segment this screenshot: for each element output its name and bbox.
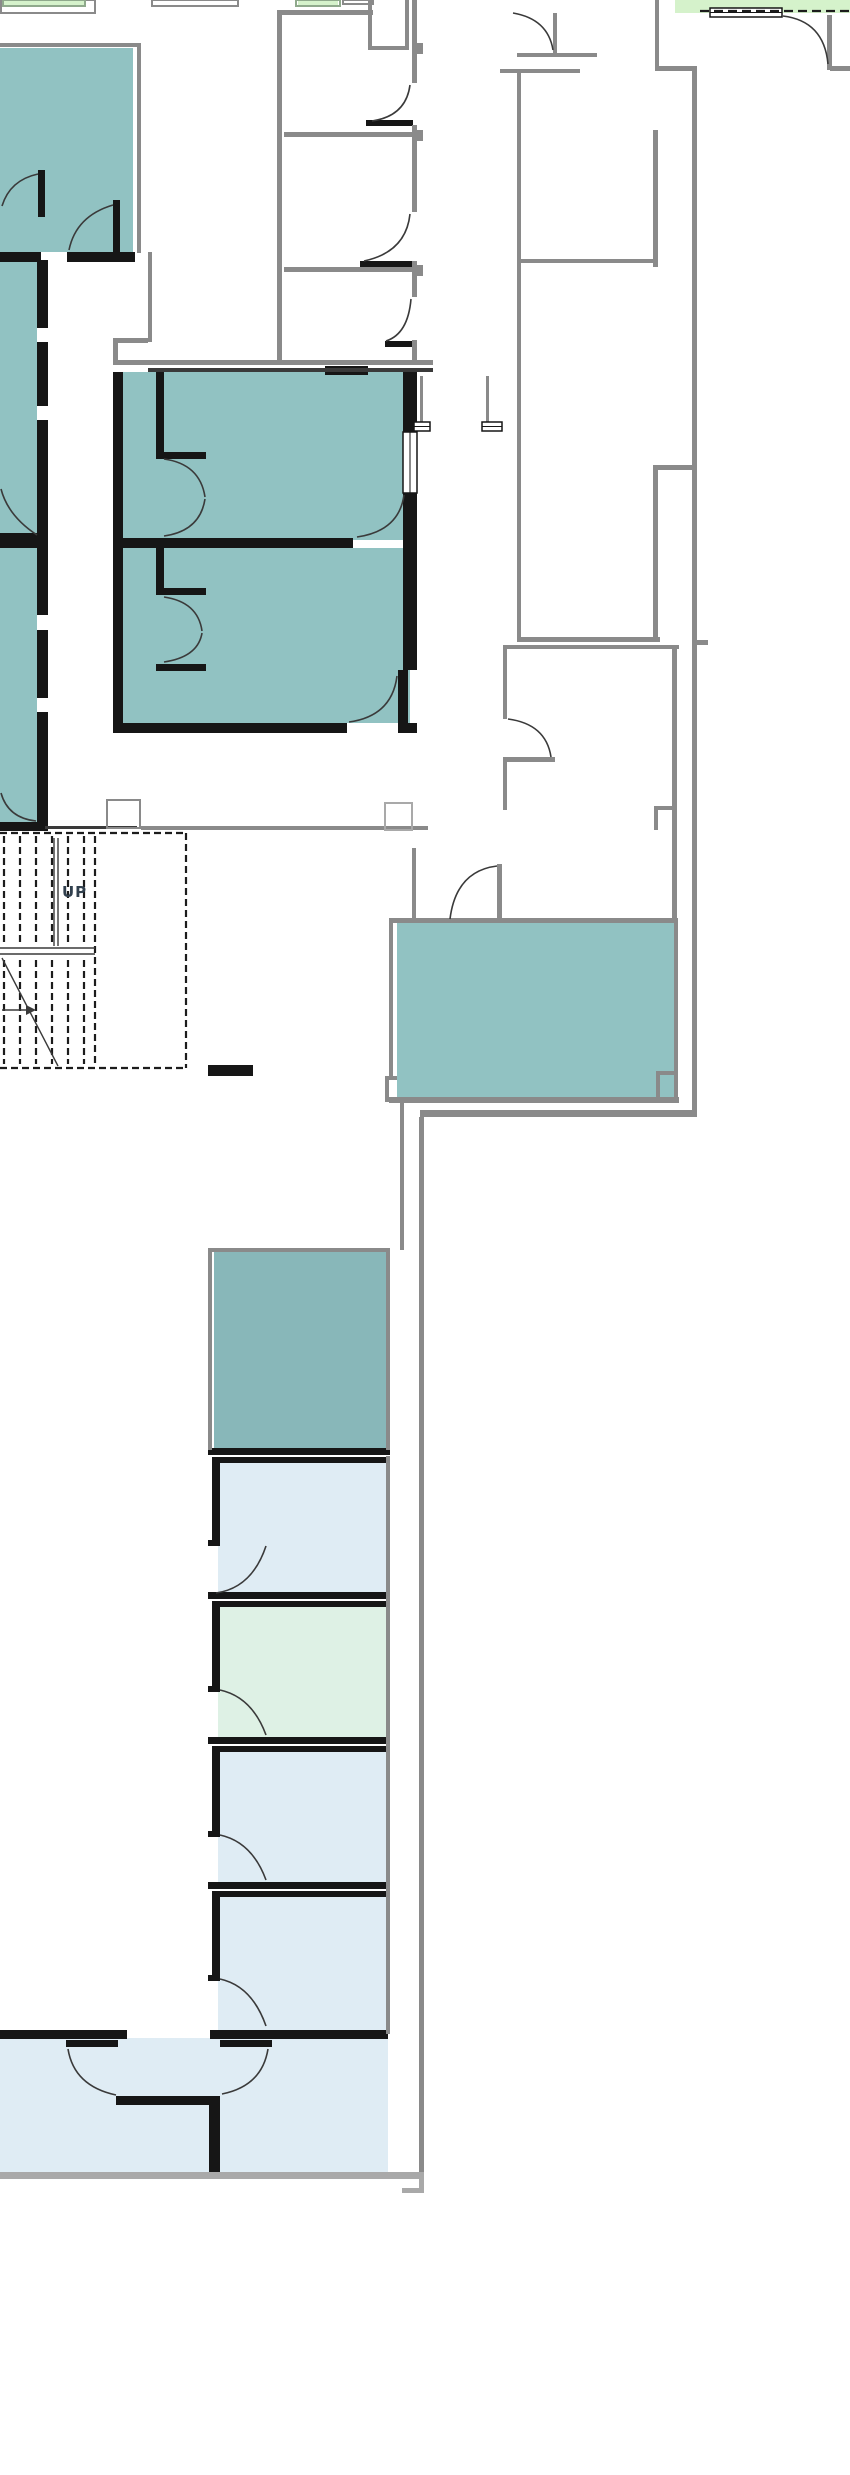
- wall: [113, 538, 353, 548]
- wall: [214, 1601, 386, 1607]
- room-left-strip-lower: [0, 547, 37, 822]
- wall: [0, 43, 141, 47]
- wall: [500, 69, 580, 73]
- wall: [389, 918, 678, 923]
- wall: [209, 2105, 220, 2172]
- wall: [486, 376, 489, 422]
- wall: [405, 0, 409, 50]
- room-wing-3: [218, 1747, 386, 1883]
- wall: [156, 548, 164, 590]
- wall: [0, 533, 48, 548]
- room-center-lower: [123, 548, 410, 723]
- wall: [503, 645, 507, 719]
- wall: [156, 664, 206, 671]
- door-leaf: [220, 2040, 272, 2047]
- wall: [412, 340, 417, 362]
- wall: [412, 0, 417, 83]
- wall: [655, 0, 659, 70]
- wall: [403, 493, 417, 670]
- wall: [420, 1110, 697, 1117]
- door-arc: [386, 299, 411, 341]
- wall: [503, 760, 507, 810]
- wall: [385, 1078, 389, 1102]
- door-leaf: [208, 1975, 220, 1981]
- wall: [692, 70, 697, 642]
- door-leaf: [66, 2040, 118, 2047]
- door-leaf: [503, 757, 555, 762]
- room-mid-right: [397, 922, 677, 1097]
- wall: [277, 10, 282, 365]
- wall: [212, 1601, 220, 1688]
- wall: [517, 73, 521, 641]
- wall: [0, 2172, 424, 2179]
- column-square: [385, 803, 412, 830]
- floor-plan: UP: [0, 0, 850, 2475]
- wall: [156, 372, 164, 456]
- door-arc: [364, 214, 410, 261]
- wall: [37, 260, 48, 328]
- wall: [277, 10, 373, 15]
- wall: [656, 1071, 660, 1099]
- door-leaf: [553, 13, 557, 53]
- door-leaf: [113, 200, 120, 252]
- wall: [517, 53, 597, 57]
- window-sill: [385, 341, 413, 347]
- room-wing-1: [218, 1462, 386, 1592]
- wall: [654, 806, 658, 830]
- wall: [517, 637, 660, 642]
- wall: [208, 1065, 253, 1076]
- door-leaf: [208, 1540, 220, 1546]
- wall: [400, 1102, 404, 1250]
- wall: [415, 130, 423, 141]
- wall: [517, 259, 657, 263]
- door-arc: [513, 13, 553, 50]
- wall: [415, 265, 423, 276]
- wall: [368, 46, 409, 50]
- wall: [208, 1737, 390, 1744]
- wall: [212, 1891, 220, 1977]
- wall: [415, 43, 423, 54]
- wall: [208, 1448, 390, 1455]
- wall: [37, 548, 48, 615]
- wall: [398, 723, 417, 733]
- wall: [214, 1891, 386, 1897]
- wall: [0, 2030, 127, 2039]
- wall: [113, 548, 123, 733]
- window-sill: [360, 261, 413, 267]
- wall: [653, 130, 658, 267]
- wall: [653, 465, 697, 470]
- wall: [113, 372, 123, 544]
- wall: [0, 822, 48, 831]
- wall: [156, 452, 206, 459]
- wall: [148, 368, 433, 372]
- wall: [0, 252, 41, 262]
- wall: [214, 1457, 386, 1463]
- floor-plan-page: UP: [0, 0, 850, 2475]
- door-arc: [783, 16, 828, 64]
- wall: [137, 43, 141, 253]
- wall: [692, 640, 708, 645]
- room-left-strip-upper: [0, 260, 37, 533]
- wall: [67, 252, 135, 262]
- wall: [37, 630, 48, 698]
- stair-notch-outline: [107, 800, 140, 828]
- wall: [210, 2030, 388, 2039]
- wall: [672, 828, 677, 920]
- door-arc: [372, 85, 410, 121]
- wall: [655, 66, 697, 71]
- door-leaf: [208, 1831, 220, 1837]
- wall: [419, 1117, 424, 2179]
- wall: [402, 2188, 424, 2193]
- room-wing-2: [218, 1602, 386, 1738]
- wall: [653, 467, 658, 642]
- wall: [386, 1252, 390, 1450]
- wall: [212, 1746, 220, 1833]
- door-leaf: [208, 1686, 220, 1692]
- room-wing-teal: [214, 1252, 386, 1448]
- wall: [389, 1097, 679, 1103]
- door-arc: [450, 866, 497, 919]
- wall: [214, 1746, 386, 1752]
- wall: [412, 848, 416, 920]
- wall: [212, 1457, 220, 1542]
- wall: [113, 723, 347, 733]
- wall: [386, 1456, 390, 2034]
- door-leaf: [398, 670, 408, 723]
- door-leaf: [38, 170, 45, 217]
- room-wing-4: [218, 1891, 386, 2030]
- door-leaf: [497, 864, 502, 922]
- wall: [113, 360, 433, 365]
- wall: [284, 132, 414, 137]
- wall: [148, 252, 152, 342]
- rooms-layer: [0, 0, 850, 2172]
- stairs-up-label: UP: [62, 883, 87, 901]
- planter-box-outline: [152, 0, 238, 6]
- wall: [284, 267, 414, 272]
- door-arc: [508, 719, 551, 757]
- wall: [113, 338, 118, 365]
- wall: [368, 0, 372, 50]
- wall: [37, 712, 48, 822]
- wall: [692, 645, 697, 1112]
- wall: [116, 2096, 220, 2105]
- wall: [420, 376, 423, 422]
- wall: [208, 1248, 390, 1252]
- wall: [208, 1882, 390, 1889]
- wall: [208, 1592, 390, 1599]
- wall: [503, 645, 679, 649]
- wall: [156, 588, 206, 595]
- wall: [37, 420, 48, 533]
- wall: [672, 645, 677, 830]
- wall: [208, 1252, 212, 1450]
- wall: [37, 342, 48, 406]
- wall: [113, 338, 148, 343]
- wall: [389, 918, 393, 1078]
- wall: [830, 66, 850, 71]
